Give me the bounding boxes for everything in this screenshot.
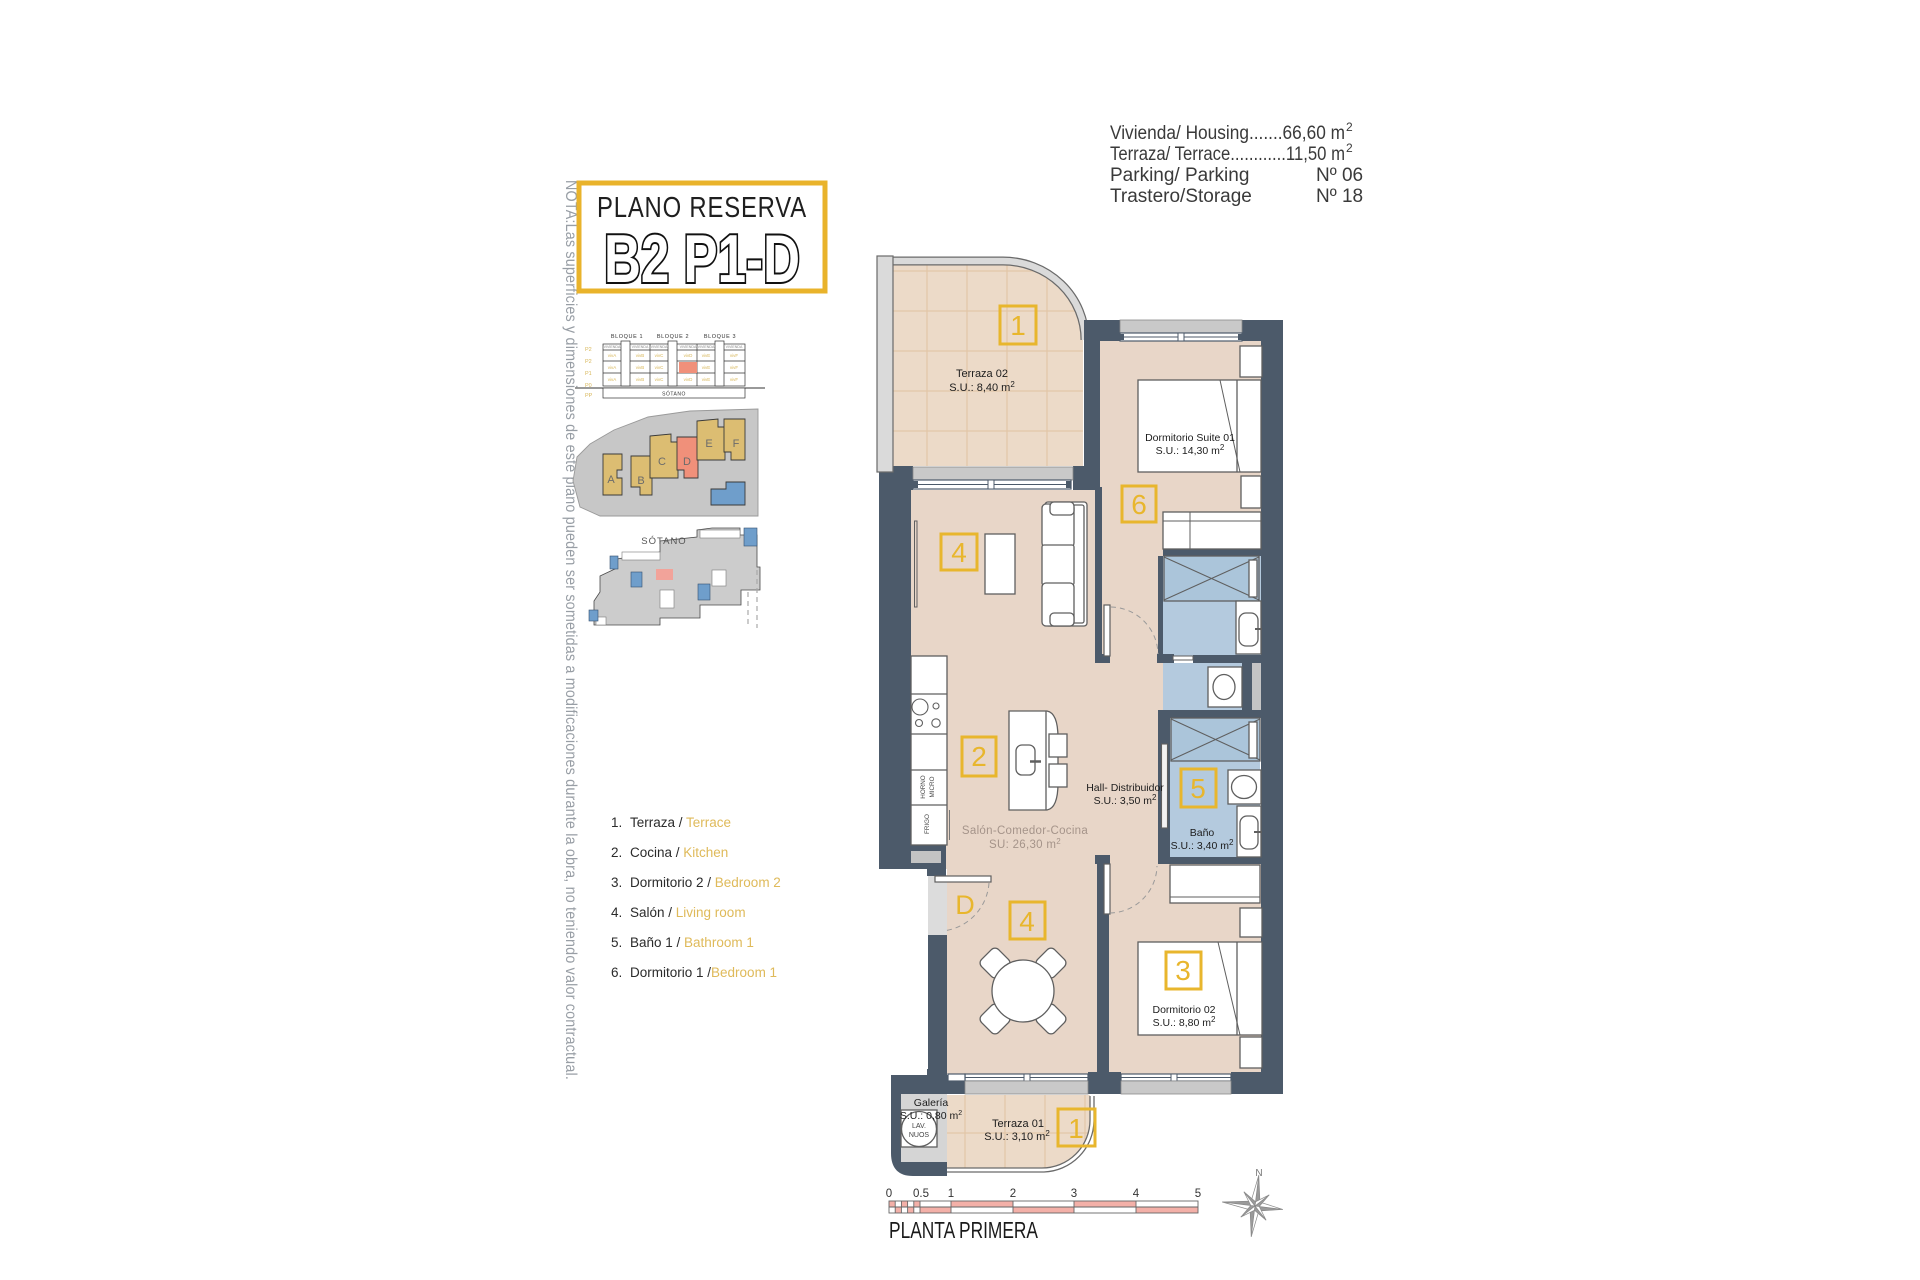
svg-text:VIVIENDA: VIVIENDA (698, 345, 715, 349)
svg-text:5.Baño 1 / Bathroom 1: 5.Baño 1 / Bathroom 1 (611, 935, 754, 950)
svg-text:vivC: vivC (655, 377, 664, 382)
svg-text:BLOQUE 2: BLOQUE 2 (657, 334, 689, 340)
svg-text:5: 5 (1190, 773, 1206, 804)
svg-text:2: 2 (971, 741, 987, 772)
svg-text:6.Dormitorio 1 /Bedroom 1: 6.Dormitorio 1 /Bedroom 1 (611, 965, 777, 980)
svg-text:Terraza 02: Terraza 02 (956, 368, 1008, 380)
svg-text:Nº 06: Nº 06 (1316, 165, 1363, 186)
svg-text:SÓTANO: SÓTANO (662, 391, 686, 398)
svg-text:P2: P2 (585, 359, 592, 365)
svg-text:BLOQUE 3: BLOQUE 3 (704, 334, 736, 340)
svg-text:MICRO: MICRO (929, 776, 936, 797)
svg-text:P2: P2 (585, 347, 592, 353)
svg-text:S.U.: 8,40 m2: S.U.: 8,40 m2 (949, 380, 1015, 394)
svg-text:S.U.: 8,80 m2: S.U.: 8,80 m2 (1153, 1015, 1216, 1029)
svg-text:D: D (955, 890, 975, 920)
svg-text:Trastero/Storage: Trastero/Storage (1110, 186, 1252, 207)
svg-text:S.U.: 0,80 m2: S.U.: 0,80 m2 (900, 1110, 962, 1122)
svg-text:F: F (733, 438, 740, 450)
svg-text:Salón-Comedor-Cocina: Salón-Comedor-Cocina (962, 825, 1088, 837)
svg-text:2: 2 (1346, 141, 1353, 155)
svg-text:S.U.: 3,40 m2: S.U.: 3,40 m2 (1171, 838, 1234, 852)
svg-text:VIVIENDA: VIVIENDA (632, 345, 649, 349)
svg-text:1: 1 (948, 1188, 954, 1200)
svg-text:vivC: vivC (655, 353, 664, 358)
svg-text:Nº 18: Nº 18 (1316, 186, 1363, 207)
svg-text:vivC: vivC (655, 365, 664, 370)
svg-text:4: 4 (951, 537, 967, 568)
svg-text:B2 P1-D: B2 P1-D (604, 221, 800, 297)
svg-text:vivA: vivA (608, 365, 617, 370)
svg-text:VIVIENDA: VIVIENDA (604, 345, 621, 349)
svg-text:SU: 26,30 m2: SU: 26,30 m2 (989, 837, 1061, 851)
svg-text:FRIGO: FRIGO (924, 814, 931, 834)
svg-text:B: B (637, 475, 644, 487)
svg-text:vivA: vivA (608, 353, 617, 358)
svg-text:Dormitorio 02: Dormitorio 02 (1152, 1004, 1215, 1016)
svg-text:P1: P1 (585, 371, 592, 377)
svg-text:6: 6 (1131, 489, 1147, 520)
svg-text:SÓTANO: SÓTANO (641, 536, 686, 547)
svg-text:D: D (683, 456, 691, 468)
svg-text:1: 1 (1010, 310, 1026, 341)
svg-text:vivB: vivB (636, 353, 645, 358)
svg-text:S.U.: 3,50 m2: S.U.: 3,50 m2 (1094, 793, 1157, 807)
svg-text:PLANO RESERVA: PLANO RESERVA (597, 192, 807, 224)
svg-text:BLOQUE 1: BLOQUE 1 (611, 334, 643, 340)
svg-text:Terraza 01: Terraza 01 (992, 1118, 1044, 1130)
svg-text:vivD: vivD (684, 377, 693, 382)
svg-text:0: 0 (886, 1188, 892, 1200)
svg-text:0.5: 0.5 (913, 1188, 929, 1200)
svg-text:2: 2 (1010, 1188, 1016, 1200)
svg-text:1: 1 (1068, 1113, 1084, 1144)
svg-text:vivE: vivE (702, 365, 711, 370)
svg-text:vivD: vivD (684, 353, 693, 358)
svg-text:1.Terraza / Terrace: 1.Terraza / Terrace (611, 815, 731, 830)
svg-text:HORNO: HORNO (920, 775, 927, 799)
svg-text:vivB: vivB (636, 377, 645, 382)
svg-text:VIVIENDA: VIVIENDA (651, 345, 668, 349)
svg-text:Terraza/ Terrace............11: Terraza/ Terrace............11,50 m (1110, 144, 1345, 165)
svg-text:Parking/ Parking: Parking/ Parking (1110, 165, 1249, 186)
svg-text:E: E (705, 438, 712, 450)
svg-text:3: 3 (1175, 955, 1191, 986)
svg-text:vivF: vivF (730, 353, 738, 358)
svg-text:PLANTA PRIMERA: PLANTA PRIMERA (889, 1217, 1038, 1243)
svg-text:Vivienda/ Housing.......66,60: Vivienda/ Housing.......66,60 m (1110, 123, 1345, 144)
svg-text:vivF: vivF (730, 365, 738, 370)
svg-text:vivF: vivF (730, 377, 738, 382)
svg-text:Baño: Baño (1190, 827, 1215, 839)
svg-text:2.Cocina / Kitchen: 2.Cocina / Kitchen (611, 845, 728, 860)
svg-text:N: N (1255, 1168, 1262, 1179)
svg-text:4: 4 (1133, 1188, 1140, 1200)
svg-text:VIVIENDA: VIVIENDA (726, 345, 743, 349)
svg-text:Galería: Galería (914, 1097, 949, 1109)
svg-text:3.Dormitorio 2 / Bedroom 2: 3.Dormitorio 2 / Bedroom 2 (611, 875, 781, 890)
svg-text:5: 5 (1195, 1188, 1201, 1200)
svg-text:vivA: vivA (608, 377, 617, 382)
svg-text:3: 3 (1071, 1188, 1077, 1200)
svg-text:S.U.: 14,30 m2: S.U.: 14,30 m2 (1156, 443, 1225, 457)
svg-text:vivE: vivE (702, 353, 711, 358)
svg-text:NOTA:Las superficies y dimensi: NOTA:Las superficies y dimensiones de es… (562, 180, 579, 1080)
svg-text:PP: PP (585, 393, 593, 399)
svg-text:LAV.: LAV. (912, 1123, 926, 1130)
svg-text:2: 2 (1346, 120, 1353, 134)
svg-text:C: C (658, 456, 666, 468)
svg-text:NUOS: NUOS (909, 1132, 930, 1139)
svg-text:4: 4 (1019, 906, 1035, 937)
svg-text:vivB: vivB (636, 365, 645, 370)
svg-text:4.Salón / Living room: 4.Salón / Living room (611, 905, 746, 920)
svg-text:A: A (607, 474, 615, 486)
svg-text:VIVIENDA: VIVIENDA (680, 345, 697, 349)
svg-text:vivE: vivE (702, 377, 711, 382)
svg-text:S.U.: 3,10 m2: S.U.: 3,10 m2 (984, 1129, 1050, 1143)
